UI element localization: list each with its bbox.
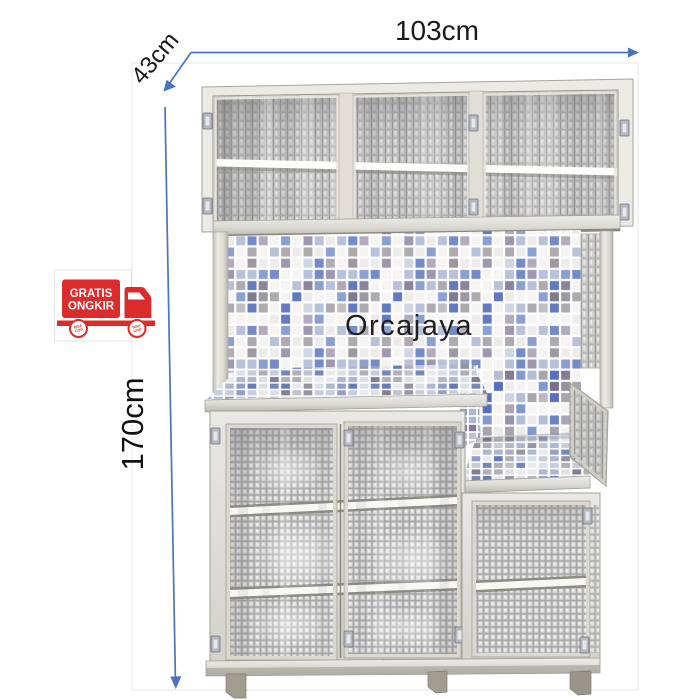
- svg-text:Orcajaya: Orcajaya: [345, 310, 473, 342]
- svg-text:GRATIS: GRATIS: [70, 288, 113, 300]
- svg-text:103cm: 103cm: [395, 15, 479, 46]
- svg-text:ONGKIR: ONGKIR: [68, 301, 115, 313]
- svg-text:170cm: 170cm: [115, 377, 150, 470]
